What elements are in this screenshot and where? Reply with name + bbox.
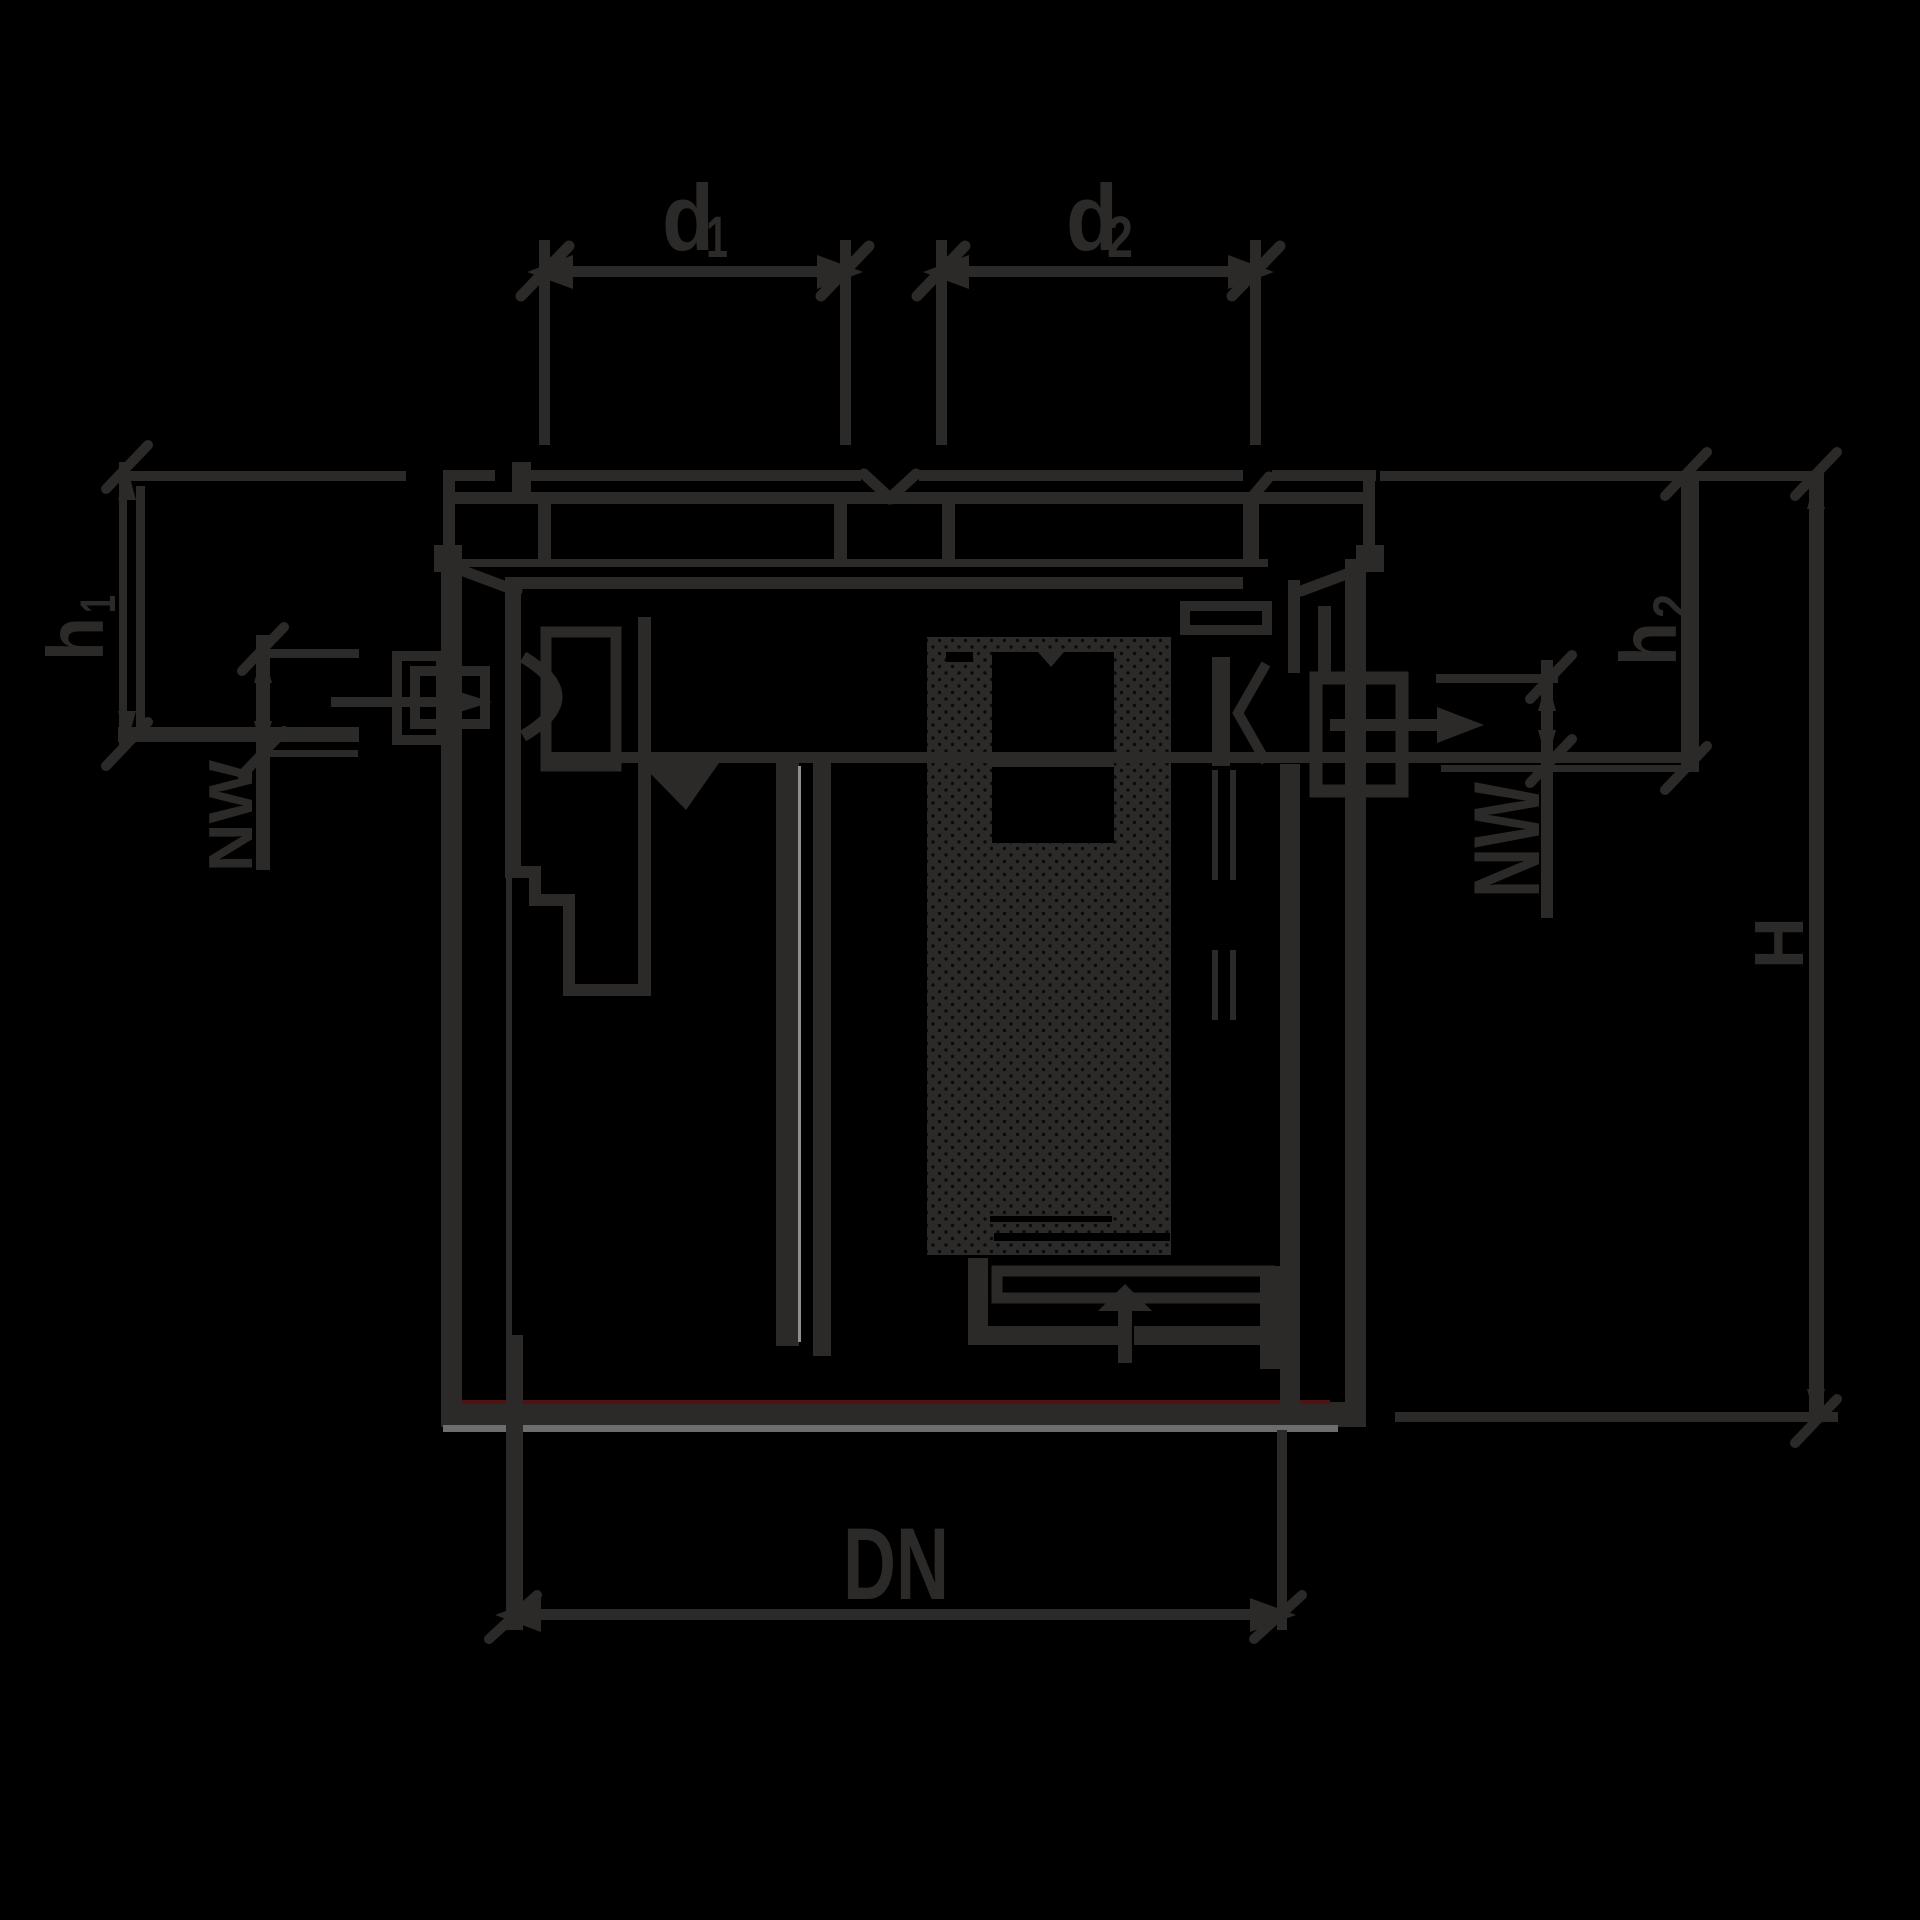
svg-text:2: 2 [1107,205,1133,270]
svg-text:1: 1 [70,595,126,613]
svg-text:NW: NW [1454,782,1559,898]
svg-text:H: H [1740,917,1818,969]
svg-text:1: 1 [706,205,728,270]
svg-text:h: h [1604,622,1693,666]
svg-text:NW: NW [197,759,266,872]
svg-text:DN: DN [843,1507,949,1621]
svg-text:h: h [31,617,120,661]
svg-text:2: 2 [1643,594,1699,618]
